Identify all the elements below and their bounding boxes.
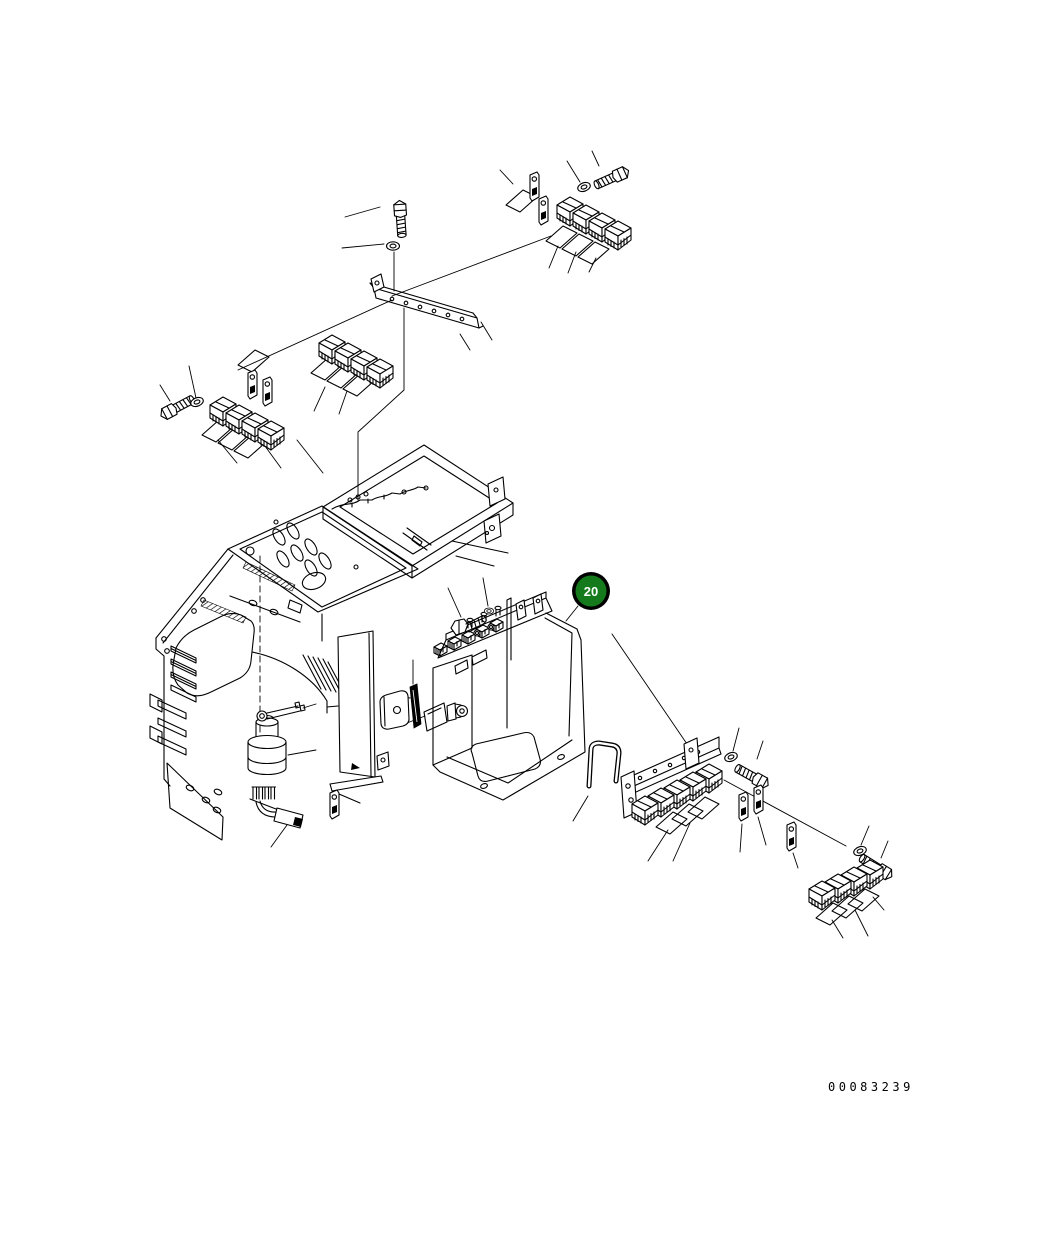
relay-group-left xyxy=(158,350,284,458)
console-slotted-plate xyxy=(201,506,418,623)
small-clip xyxy=(330,790,339,819)
top-bolt xyxy=(393,200,408,238)
bolt-icon xyxy=(158,393,196,421)
console-left-frame xyxy=(150,549,338,840)
stud-boss xyxy=(424,703,468,731)
clip-icon xyxy=(539,196,548,225)
key-switch xyxy=(257,702,305,721)
relay-group-far-right xyxy=(787,822,895,925)
canister xyxy=(248,716,286,775)
drawing-number: 00083239 xyxy=(828,1080,1048,1094)
bolt-icon xyxy=(733,762,771,790)
clip-icon xyxy=(263,377,272,406)
tray-strap xyxy=(403,528,431,550)
parts-diagram-page: 20 00083239 xyxy=(0,0,1058,1245)
plate-hatched-edge-2 xyxy=(201,600,246,623)
clip-icon xyxy=(754,785,763,814)
relay-box-bracket xyxy=(410,592,619,800)
wire-connector xyxy=(250,787,303,828)
badge-number[interactable]: 20 xyxy=(584,584,598,599)
socket-icon xyxy=(448,637,461,650)
relay-group-middle xyxy=(311,335,393,396)
callout-badge[interactable]: 20 xyxy=(572,572,610,610)
bottom-apron xyxy=(167,763,223,840)
clip-icon xyxy=(739,792,748,821)
tray-wiring-harness xyxy=(332,486,428,509)
exploded-parts-drawing: 20 xyxy=(0,0,1058,1245)
washer-icon xyxy=(576,181,591,193)
mount-flap-icon xyxy=(238,350,269,372)
rail-mid-plate xyxy=(684,738,699,769)
console-side-panel xyxy=(330,631,409,803)
socket-icon xyxy=(434,643,447,656)
clip-icon xyxy=(787,822,796,851)
rail-assembly xyxy=(621,737,771,834)
hatch-stripes xyxy=(303,655,343,693)
bolt-icon xyxy=(393,200,408,238)
connector-bracket-stubs xyxy=(150,646,196,755)
washer-icon xyxy=(723,751,738,763)
top-washer-icon xyxy=(387,242,400,250)
bracket-bar xyxy=(370,274,483,328)
leader-lines xyxy=(160,151,888,938)
clip-icon xyxy=(248,370,257,399)
bolt-icon xyxy=(592,165,631,191)
j-hook xyxy=(589,743,619,786)
strip-washer-icon xyxy=(484,608,493,614)
console-tray xyxy=(323,445,513,578)
relay-group-top-right xyxy=(506,165,631,264)
relay-icon xyxy=(809,881,835,910)
shelf-cutout xyxy=(471,733,540,782)
clip-icon xyxy=(530,172,539,201)
